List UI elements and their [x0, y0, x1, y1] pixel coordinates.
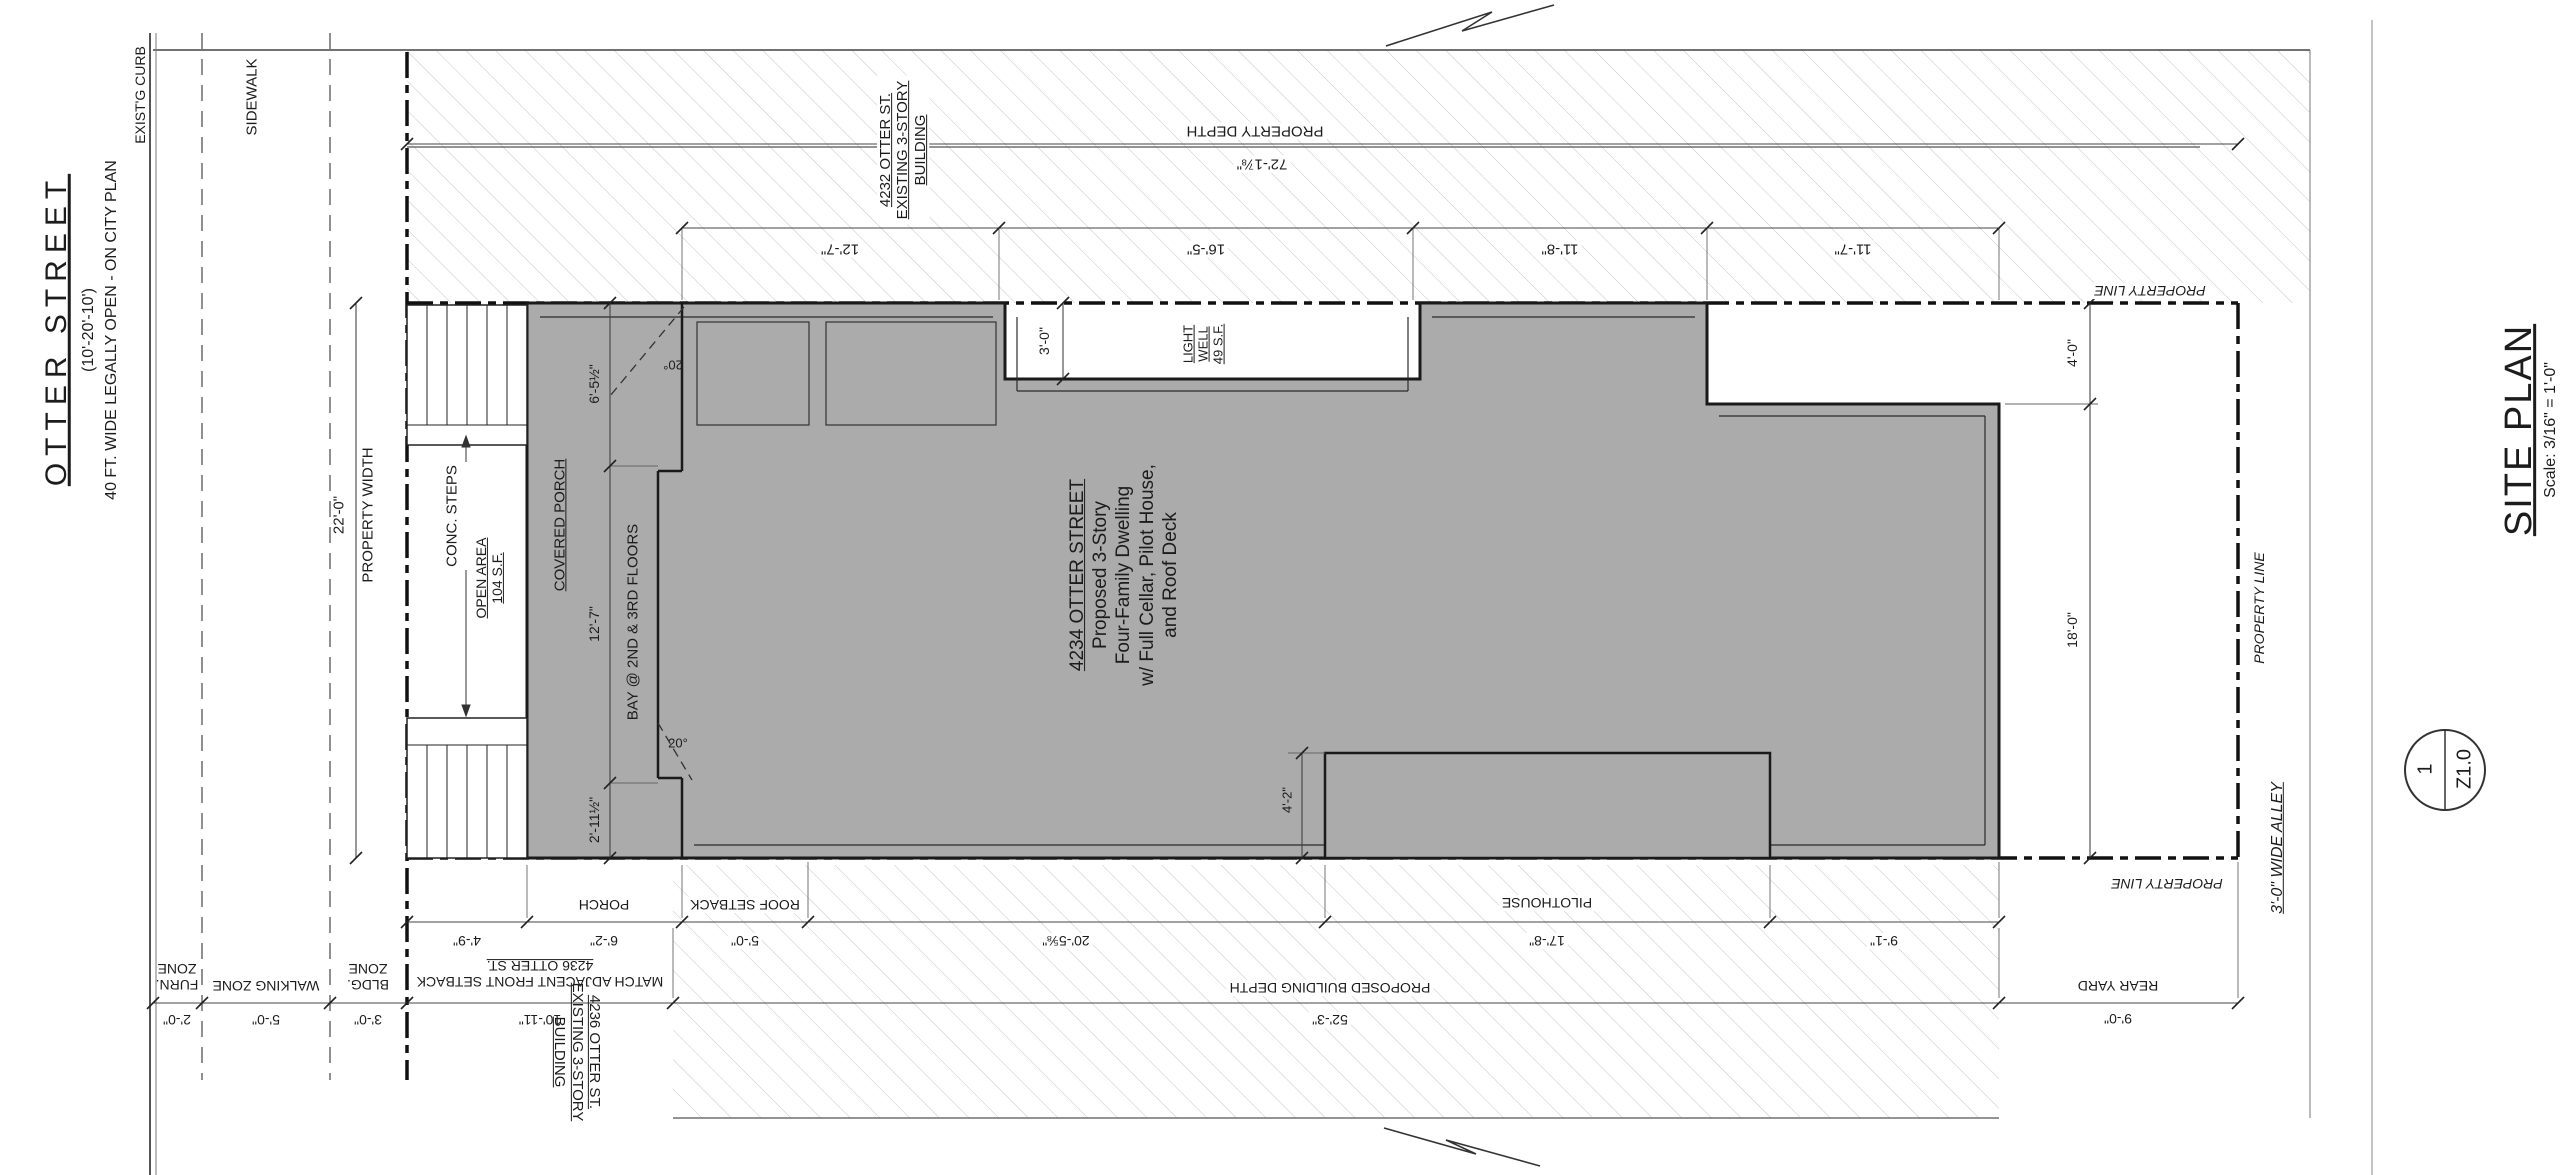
bldg-zone-line1: BLDG. [347, 977, 389, 993]
lightwell-line2: WELL [1197, 324, 1212, 364]
south-neighbor-line1: 4236 OTTER ST. [586, 983, 603, 1122]
property-line-label-right: PROPERTY LINE [2251, 552, 2267, 664]
building-line1: 4234 OTTER STREET [1066, 464, 1089, 686]
porch-dim-2: 12'-7" [586, 606, 602, 642]
building-line3: Four-Family Dwelling [1112, 464, 1135, 686]
bay-angle-top: 20° [663, 357, 683, 372]
lightwell-label: LIGHT WELL 49 S.F. [1182, 324, 1227, 364]
furn-zone-label: FURN. ZONE [156, 961, 199, 993]
street-note: 40 FT. WIDE LEGALLY OPEN - ON CITY PLAN [103, 160, 121, 500]
site-plan-sheet: OTTER STREET (10'-20'-10') 40 FT. WIDE L… [0, 0, 2560, 1175]
north-neighbor-label: 4232 OTTER ST. EXISTING 3-STORY BUILDING [877, 76, 929, 225]
lightwell-line1: LIGHT [1182, 324, 1197, 364]
roof-setback-label: ROOF SETBACK [687, 897, 803, 913]
walking-zone-label: WALKING ZONE [213, 978, 320, 994]
pilothouse-rect [1325, 753, 1770, 858]
building-footprint [527, 303, 1999, 858]
furn-zone-line2: ZONE [156, 961, 199, 977]
lightwell-dim: 3'-0" [1036, 327, 1052, 355]
match-setback-line2: 4236 OTTER ST. [417, 958, 664, 974]
east-dim-4ft: 4'-0" [2064, 339, 2080, 367]
bay-label: BAY @ 2ND & 3RD FLOORS [624, 524, 641, 720]
match-setback-label: MATCH ADJACENT FRONT SETBACK 4236 OTTER … [417, 958, 664, 990]
north-neighbor-line3: BUILDING [912, 79, 929, 222]
steps-leader [462, 436, 470, 716]
curb-label: EXIST'G CURB [132, 46, 148, 144]
rowA-dim-1: 4'-9" [453, 933, 481, 949]
top-dim-1: 12'-7" [818, 240, 862, 257]
rowA-dim-3: 5'-0" [728, 933, 762, 949]
rowA-dim-5: 17'-8" [1526, 933, 1568, 949]
bldg-zone-line2: ZONE [347, 961, 389, 977]
north-neighbor-line2: EXISTING 3-STORY [894, 79, 911, 222]
property-width-label: PROPERTY WIDTH [359, 447, 376, 582]
open-area-label: OPEN AREA 104 S.F. [473, 538, 505, 619]
covered-porch-label: COVERED PORCH [551, 459, 568, 592]
property-line-label-bottom: PROPERTY LINE [2111, 876, 2223, 892]
south-neighbor-label: 4236 OTTER ST. EXISTING 3-STORY BUILDING [551, 983, 603, 1122]
rear-yard-dim: 9'-0" [2104, 1011, 2132, 1027]
top-dim-4: 11'-7" [1831, 240, 1874, 257]
east-dim-18ft: 18'-0" [2064, 612, 2080, 648]
building-label: 4234 OTTER STREET Proposed 3-Story Four-… [1066, 464, 1182, 686]
rowA-dim-2: 6'-2" [590, 933, 618, 949]
drawing-scale: Scale: 3/16" = 1'-0" [2542, 362, 2560, 498]
north-neighbor-hatch [407, 50, 2310, 303]
porch-dim-1: 6'-5½" [586, 364, 602, 404]
south-neighbor-line3: BUILDING [551, 983, 568, 1122]
property-depth-label: PROPERTY DEPTH [1184, 122, 1327, 139]
porch-dim-3: 2'-11½" [586, 797, 602, 843]
bldg-zone-label: BLDG. ZONE [347, 961, 389, 993]
detail-number: 1 [2415, 763, 2438, 774]
building-depth-dim: 52'-3" [1309, 1012, 1351, 1028]
pilothouse-height-dim: 4'-2" [1281, 787, 1296, 813]
building-line2: Proposed 3-Story [1089, 464, 1112, 686]
furn-zone-dim: 2'-0" [163, 1012, 191, 1028]
street-widths: (10'-20'-10') [80, 288, 98, 372]
rear-yard-label: REAR YARD [2078, 978, 2158, 994]
open-area-line1: OPEN AREA [473, 538, 489, 619]
sheet-number: Z1.0 [2454, 749, 2477, 789]
furn-zone-line1: FURN. [156, 977, 199, 993]
bay-angle-bottom: 20° [668, 737, 688, 752]
walking-zone-dim: 5'-0" [252, 1012, 280, 1028]
south-neighbor-line2: EXISTING 3-STORY [568, 983, 585, 1122]
property-line-label-top: PROPERTY LINE [2091, 283, 2209, 299]
drawing-title: SITE PLAN [2498, 324, 2542, 536]
property-depth-dim: 72'-1⅞" [1234, 155, 1291, 172]
match-setback-line1: MATCH ADJACENT FRONT SETBACK [417, 974, 664, 990]
open-area-line2: 104 S.F. [489, 538, 505, 619]
north-neighbor-line1: 4232 OTTER ST. [877, 79, 894, 222]
street-name: OTTER STREET [40, 174, 75, 486]
lightwell-line3: 49 S.F. [1211, 324, 1226, 364]
alley-label: 3'-0" WIDE ALLEY [2269, 782, 2287, 914]
pilothouse-seg-label: PILOTHOUSE [1499, 895, 1595, 911]
site-plan-drawing [0, 0, 2560, 1175]
bottom-break-mark [1384, 1128, 1540, 1166]
top-dim-3: 11'-8" [1538, 240, 1581, 257]
sidewalk-label: SIDEWALK [243, 59, 260, 136]
top-dim-2: 16'-5" [1184, 240, 1228, 257]
bldg-zone-dim: 3'-0" [354, 1012, 382, 1028]
rowA-dim-4: 20'-5⅝" [1039, 933, 1092, 949]
property-width-dim: 22'-0" [330, 496, 347, 534]
building-line4: w/ Full Cellar, Pilot House, [1136, 464, 1159, 686]
top-break-mark [1386, 5, 1554, 46]
building-depth-label: PROPOSED BUILDING DEPTH [1227, 980, 1434, 996]
building-line5: and Roof Deck [1159, 464, 1182, 686]
conc-steps-label: CONC. STEPS [443, 465, 460, 567]
porch-seg-label: PORCH [579, 897, 630, 913]
rowA-dim-6: 9'-1" [1867, 933, 1901, 949]
